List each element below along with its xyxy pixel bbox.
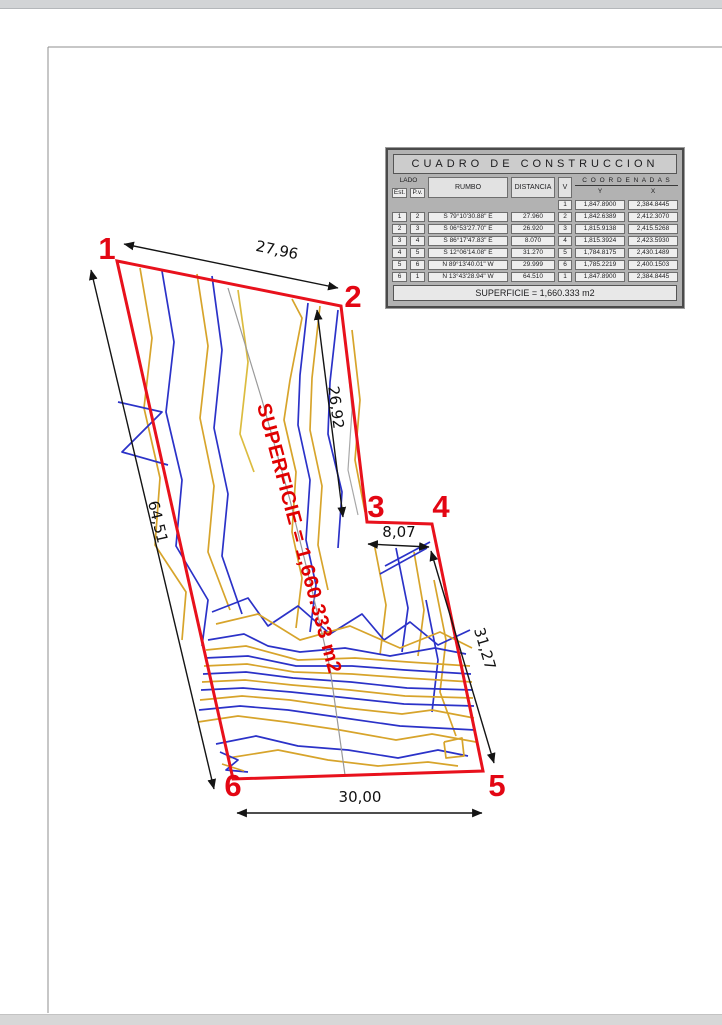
- dimension-label-4-5: 31,27: [470, 625, 499, 671]
- cell-rumbo: S 79°10'30.88" E: [428, 212, 508, 222]
- dimension-label-1-2: 27,96: [254, 237, 300, 263]
- column-header-distancia: DISTANCIA: [511, 177, 555, 198]
- empty-cell: [428, 200, 508, 210]
- empty-cell: [410, 200, 425, 210]
- vertex-label-2: 2: [344, 279, 361, 314]
- cell-v: 4: [558, 236, 572, 246]
- cell-v: 2: [558, 212, 572, 222]
- contour-line: [216, 614, 472, 648]
- cell-pv: 3: [410, 224, 425, 234]
- dimension-line-1-2: [124, 244, 338, 288]
- cell-rumbo: N 13°43'28.94" W: [428, 272, 508, 282]
- vertex-label-3: 3: [367, 489, 384, 524]
- cell-y: 1,847.8900: [575, 272, 625, 282]
- cell-pv: 4: [410, 236, 425, 246]
- superficie-total: SUPERFICIE = 1,660.333 m2: [393, 285, 677, 301]
- construction-table-title: CUADRO DE CONSTRUCCION: [393, 154, 677, 174]
- plan-sheet-page: 27,96 26,92 8,07 31,27 30,00 64,51 SUPER…: [0, 0, 722, 1024]
- cell-v: 5: [558, 248, 572, 258]
- dimension-label-6-1: 64,51: [144, 499, 171, 545]
- contour-line: [140, 268, 186, 640]
- cell-est: 1: [392, 212, 407, 222]
- vertex-label-1: 1: [98, 231, 115, 266]
- cell-rumbo: S 86°17'47.83" E: [428, 236, 508, 246]
- cell-y: 1,815.9138: [575, 224, 625, 234]
- construction-table-grid: LADO RUMBO DISTANCIA V C O O R D E N A D…: [393, 177, 677, 282]
- cell-y: 1,815.3924: [575, 236, 625, 246]
- contour-line: [426, 600, 438, 712]
- column-header-rumbo: RUMBO: [428, 177, 508, 198]
- column-header-est: Est.: [392, 188, 407, 198]
- vertex-label-5: 5: [488, 768, 505, 803]
- cell-x: 2,430.1489: [628, 248, 678, 258]
- contour-line: [197, 274, 230, 610]
- empty-cell: [511, 200, 555, 210]
- cell-x: 2,412.3070: [628, 212, 678, 222]
- empty-cell: [392, 200, 407, 210]
- dimension-label-3-4: 8,07: [382, 523, 415, 541]
- column-header-lado: LADO: [392, 177, 425, 186]
- cell-rumbo: S 12°06'14.08" E: [428, 248, 508, 258]
- cell-est: 5: [392, 260, 407, 270]
- cell-rumbo: N 89°13'40.01" W: [428, 260, 508, 270]
- cell-x: 2,384.8445: [628, 200, 678, 210]
- cell-distancia: 8.070: [511, 236, 555, 246]
- cell-v: 1: [558, 200, 572, 210]
- column-header-y: Y: [575, 188, 625, 198]
- cell-v: 1: [558, 272, 572, 282]
- cell-y: 1,784.8175: [575, 248, 625, 258]
- cell-v: 6: [558, 260, 572, 270]
- cell-y: 1,847.8900: [575, 200, 625, 210]
- contour-line: [238, 290, 254, 472]
- cell-x: 2,400.1503: [628, 260, 678, 270]
- cell-distancia: 26.920: [511, 224, 555, 234]
- cell-x: 2,423.5930: [628, 236, 678, 246]
- cell-est: 2: [392, 224, 407, 234]
- cell-est: 6: [392, 272, 407, 282]
- cell-x: 2,384.8445: [628, 272, 678, 282]
- contour-line: [380, 548, 427, 574]
- cell-pv: 5: [410, 248, 425, 258]
- dimension-label-5-6: 30,00: [339, 788, 382, 806]
- cell-y: 1,842.6389: [575, 212, 625, 222]
- vertex-label-6: 6: [224, 768, 241, 803]
- cell-x: 2,415.5268: [628, 224, 678, 234]
- column-header-x: X: [628, 188, 678, 198]
- dimension-line-3-4: [368, 544, 429, 547]
- cell-pv: 2: [410, 212, 425, 222]
- contour-line: [212, 276, 242, 614]
- cell-v: 3: [558, 224, 572, 234]
- cell-distancia: 27.960: [511, 212, 555, 222]
- cell-distancia: 31.270: [511, 248, 555, 258]
- cell-pv: 6: [410, 260, 425, 270]
- column-header-coordenadas: C O O R D E N A D A S: [575, 177, 678, 186]
- cell-est: 4: [392, 248, 407, 258]
- cell-rumbo: S 06°53'27.70" E: [428, 224, 508, 234]
- cell-est: 3: [392, 236, 407, 246]
- cell-pv: 1: [410, 272, 425, 282]
- column-header-v: V: [558, 177, 572, 198]
- construction-table: CUADRO DE CONSTRUCCION LADO RUMBO DISTAN…: [386, 148, 684, 308]
- area-label: SUPERFICIE = 1,660.333 m2: [252, 401, 345, 676]
- cell-distancia: 64.510: [511, 272, 555, 282]
- vertex-label-4: 4: [432, 489, 450, 524]
- cell-distancia: 29.999: [511, 260, 555, 270]
- cell-y: 1,785.2219: [575, 260, 625, 270]
- column-header-pv: P.v.: [410, 188, 425, 198]
